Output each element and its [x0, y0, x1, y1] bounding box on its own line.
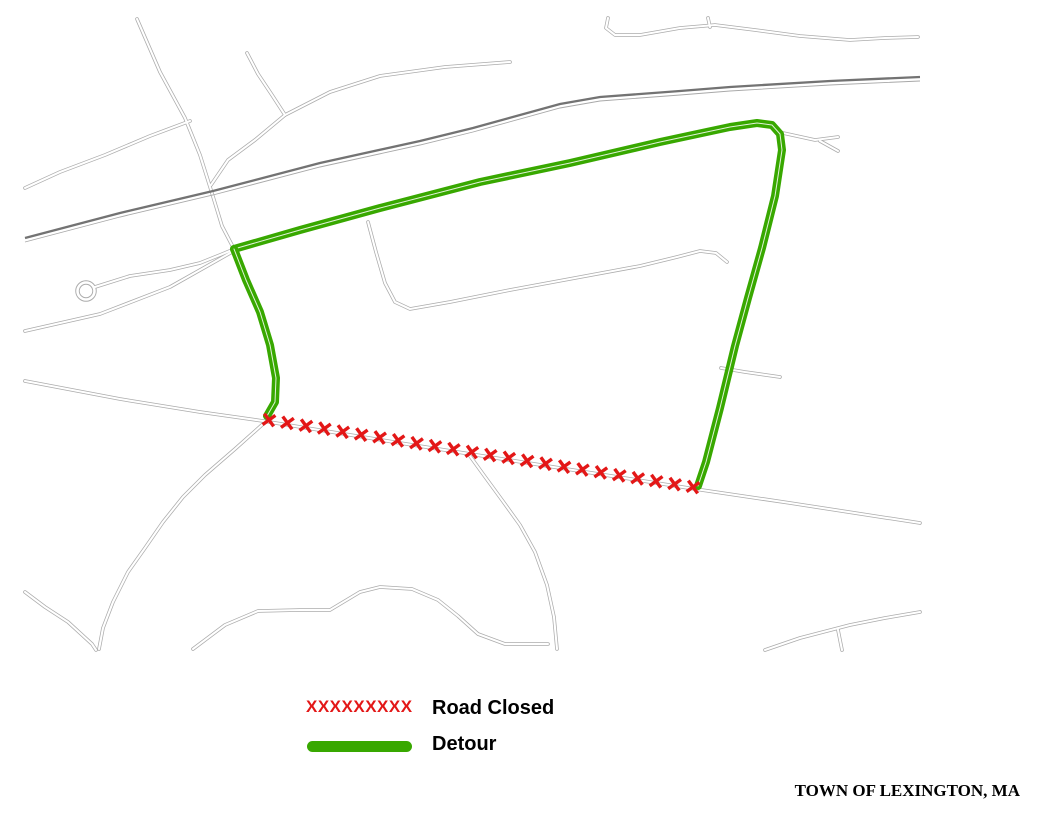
road-closed-symbol: XXXXXXXXX — [306, 697, 413, 717]
closure-x-marks-lowell-street-closed — [263, 414, 700, 494]
road-laconia-street — [470, 456, 557, 649]
road-fill-laconia-street — [470, 456, 557, 649]
detour-douglas-fulton — [234, 123, 782, 486]
road-cooke-road — [368, 222, 727, 309]
road-closed-label: Road Closed — [432, 697, 554, 720]
road-east-street — [99, 424, 263, 649]
detour-label: Detour — [432, 733, 496, 756]
road-fill-cul-de-sac — [78, 283, 95, 300]
road-fill-cul-de-sac-road — [95, 250, 232, 287]
detour-symbol — [307, 741, 412, 752]
road-fill-fulton-east-stub-branch — [820, 141, 838, 151]
road-fill-cooke-road — [368, 222, 727, 309]
page-title: TOWN OF LEXINGTON, MA — [795, 781, 1020, 801]
map-canvas — [0, 0, 1056, 816]
detour-west-connector — [234, 249, 276, 416]
road-fill-parliament-lane — [285, 62, 510, 115]
road-fill-burroughs-road — [25, 592, 96, 650]
road-fill-robinson-road — [606, 18, 918, 40]
railroad-line — [25, 77, 920, 238]
road-fill-east-street — [99, 424, 263, 649]
road-robinson-road — [606, 18, 918, 40]
road-parliament-lane — [285, 62, 510, 115]
railroad-parallel-line — [25, 81, 920, 242]
road-fill-ridge-road — [193, 587, 548, 649]
